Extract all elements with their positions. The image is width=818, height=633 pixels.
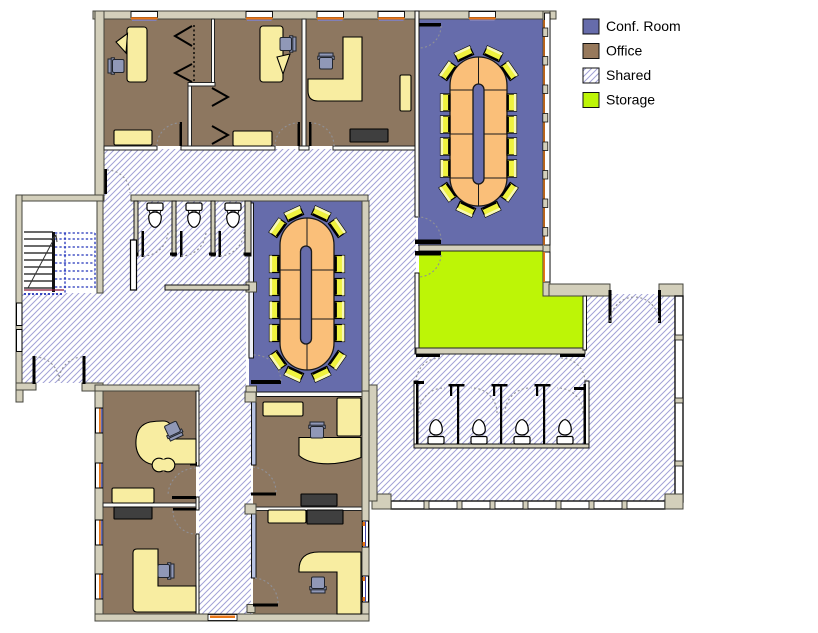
svg-text:Conf. Room: Conf. Room [606,18,681,34]
svg-text:Storage: Storage [606,92,655,108]
svg-text:Shared: Shared [606,67,651,83]
svg-text:Office: Office [606,43,643,59]
